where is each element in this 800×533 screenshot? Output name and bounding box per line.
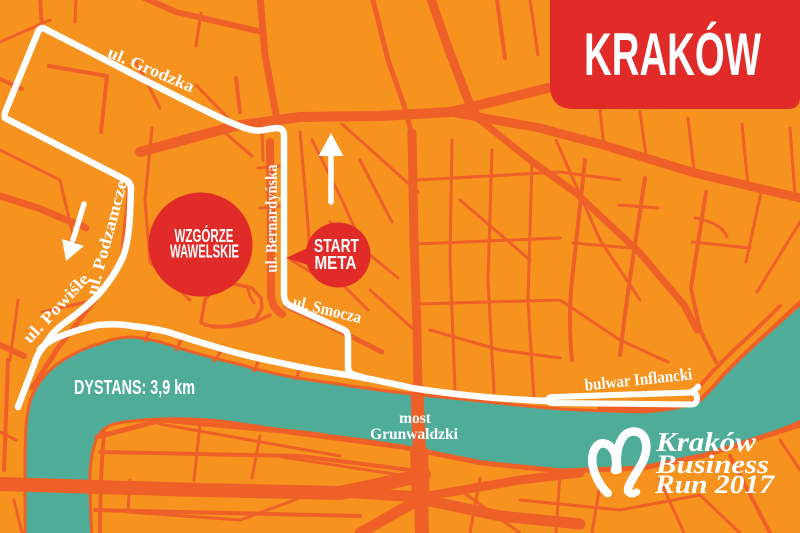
svg-text:DYSTANS: 3,9 km: DYSTANS: 3,9 km [74,377,195,399]
svg-text:KRAKÓW: KRAKÓW [584,21,761,88]
svg-text:META: META [315,253,357,273]
svg-text:ul. Bernardyńska: ul. Bernardyńska [262,164,281,272]
svg-text:Grunwaldzki: Grunwaldzki [370,426,459,443]
svg-text:WAWELSKIE: WAWELSKIE [170,242,239,262]
svg-text:Run 2017: Run 2017 [654,470,775,499]
svg-text:most: most [399,410,432,427]
